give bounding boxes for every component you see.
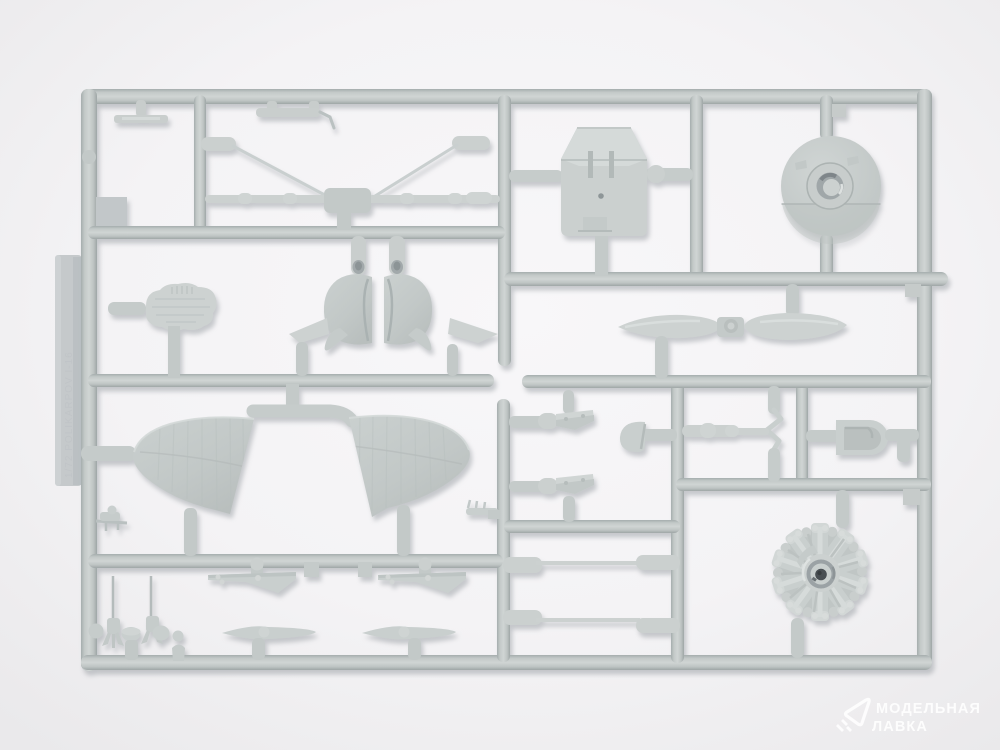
svg-text:МОДЕЛЬНАЯ: МОДЕЛЬНАЯ [876, 701, 981, 717]
svg-text:ЛАВКА: ЛАВКА [872, 719, 928, 735]
svg-text:1/72 POLIKARPOV I-16: 1/72 POLIKARPOV I-16 [64, 351, 75, 478]
